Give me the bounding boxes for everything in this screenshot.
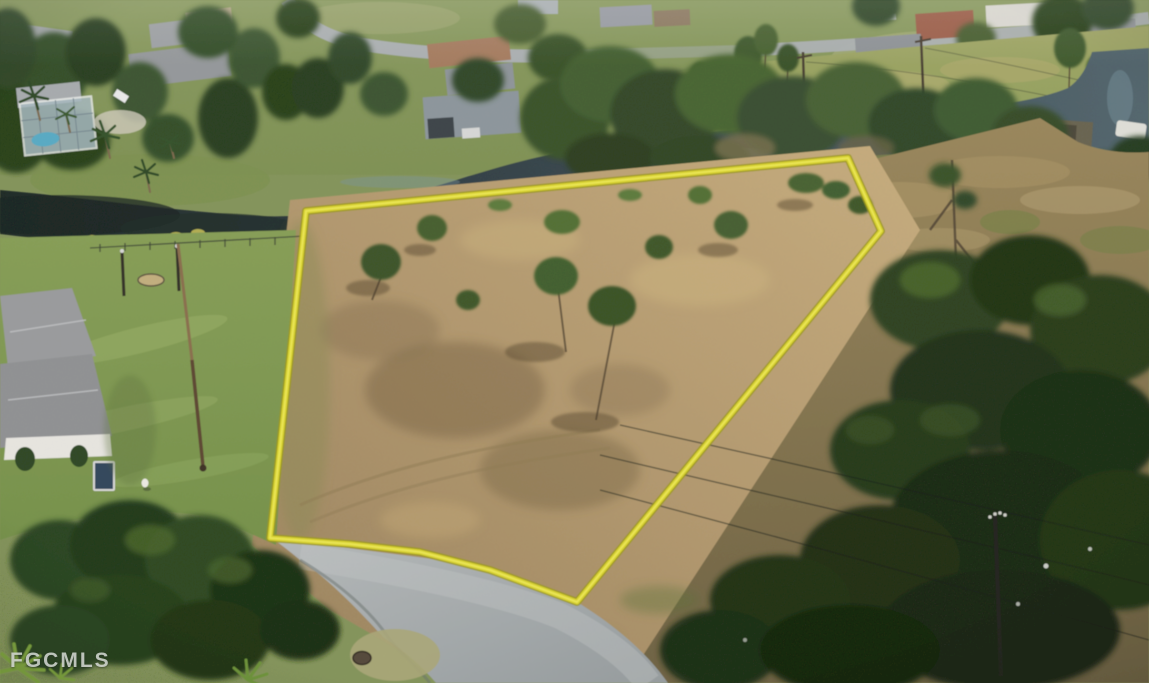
- vignette: [0, 0, 1149, 683]
- aerial-photo: FGCMLS: [0, 0, 1149, 683]
- aerial-photo-svg: [0, 0, 1149, 683]
